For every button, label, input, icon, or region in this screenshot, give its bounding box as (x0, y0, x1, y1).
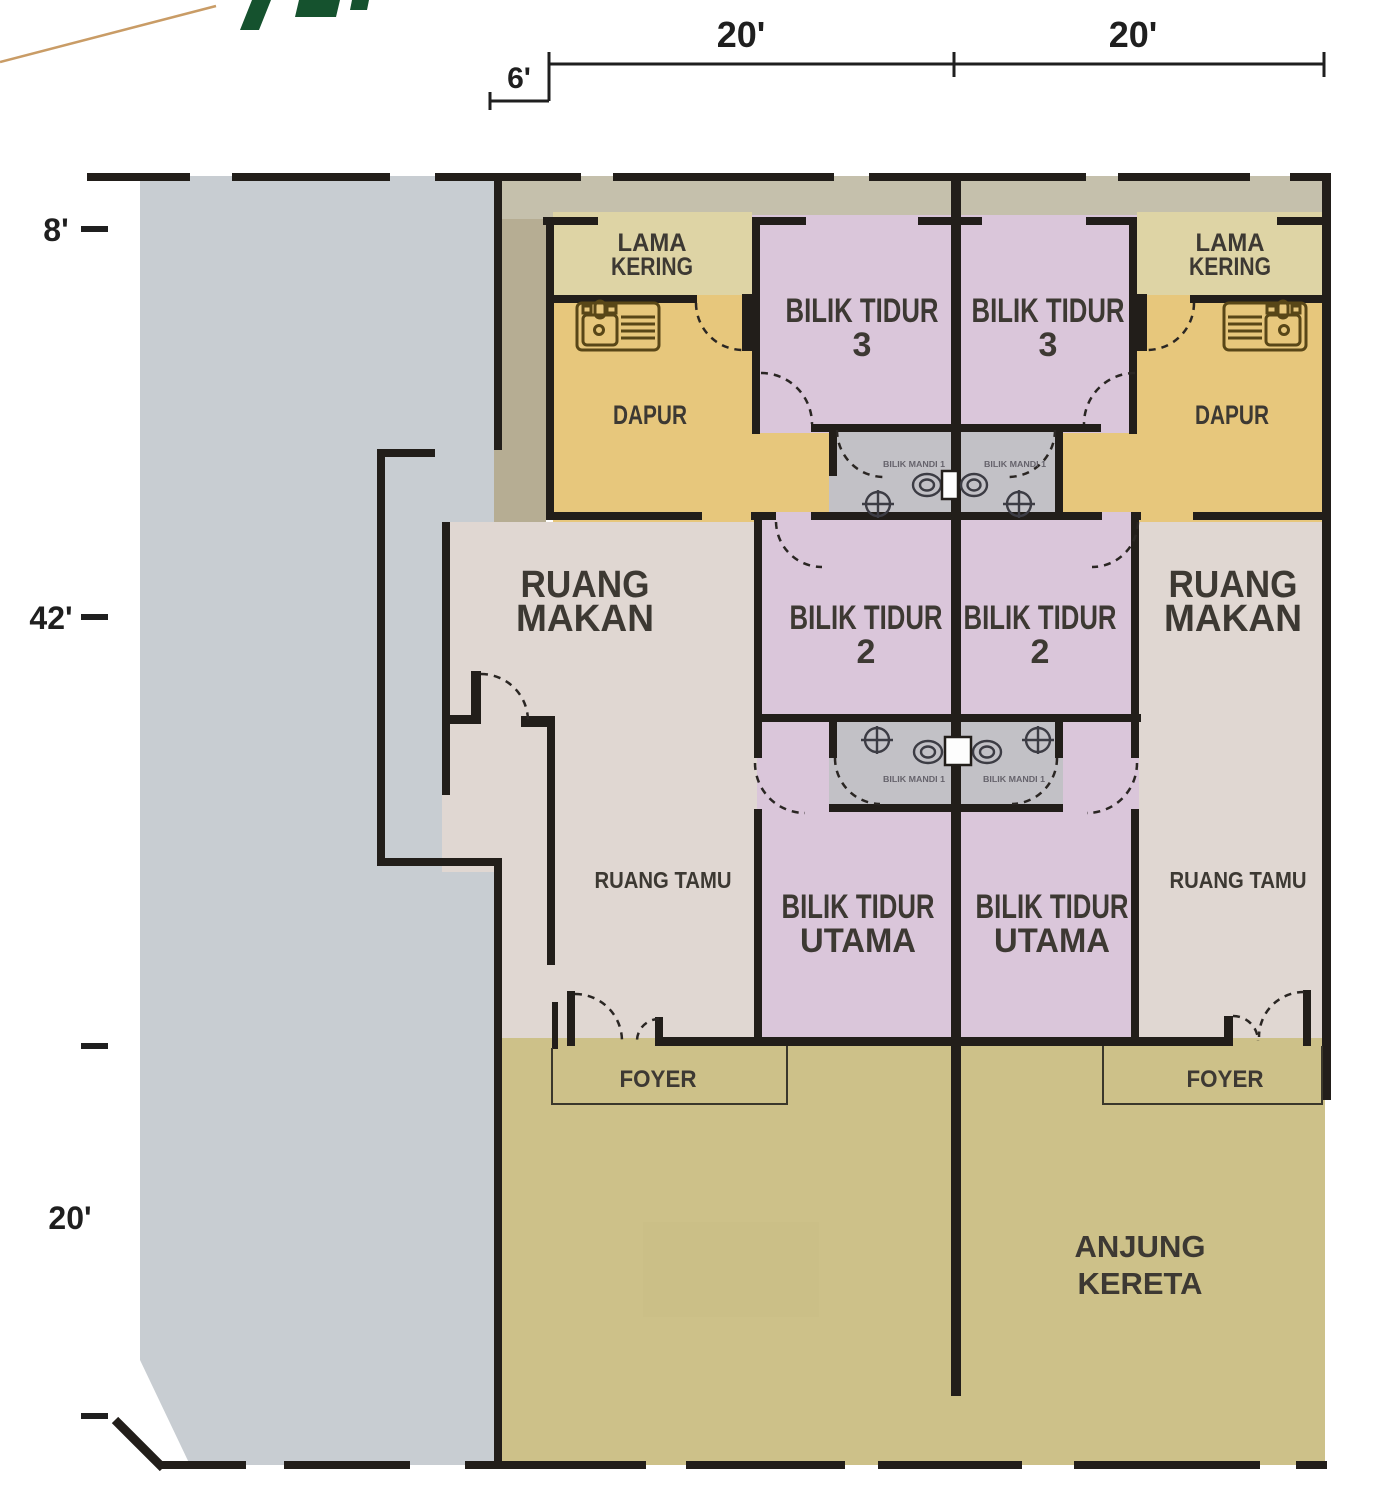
svg-text:MAKAN: MAKAN (516, 598, 654, 640)
svg-text:BILIK MANDI 1: BILIK MANDI 1 (883, 774, 945, 784)
svg-text:2: 2 (1031, 633, 1050, 671)
svg-text:RUANG TAMU: RUANG TAMU (595, 867, 732, 893)
svg-text:BILIK MANDI 1: BILIK MANDI 1 (883, 459, 945, 469)
svg-text:BILIK MANDI 1: BILIK MANDI 1 (983, 774, 1045, 784)
svg-text:KERING: KERING (611, 253, 693, 281)
svg-text:ANJUNG: ANJUNG (1075, 1229, 1206, 1264)
svg-text:RUANG TAMU: RUANG TAMU (1170, 867, 1307, 893)
svg-text:3: 3 (853, 326, 872, 364)
svg-text:BILIK TIDUR: BILIK TIDUR (790, 599, 943, 637)
svg-text:BILIK TIDUR: BILIK TIDUR (972, 292, 1125, 330)
svg-text:KERETA: KERETA (1078, 1266, 1203, 1301)
svg-text:BILIK TIDUR: BILIK TIDUR (782, 888, 935, 926)
svg-text:FOYER: FOYER (1187, 1066, 1264, 1093)
svg-text:KERING: KERING (1189, 253, 1271, 281)
svg-text:BILIK MANDI 1: BILIK MANDI 1 (984, 459, 1046, 469)
svg-text:FOYER: FOYER (620, 1066, 697, 1093)
svg-text:20': 20' (717, 14, 766, 55)
svg-text:2: 2 (857, 633, 876, 671)
svg-text:8': 8' (43, 212, 68, 248)
svg-text:6': 6' (507, 62, 531, 95)
svg-text:BILIK TIDUR: BILIK TIDUR (976, 888, 1129, 926)
svg-text:20': 20' (1109, 14, 1158, 55)
svg-text:BILIK TIDUR: BILIK TIDUR (786, 292, 939, 330)
svg-text:MAKAN: MAKAN (1164, 598, 1302, 640)
svg-text:UTAMA: UTAMA (994, 922, 1110, 960)
svg-text:UTAMA: UTAMA (800, 922, 916, 960)
svg-text:3: 3 (1039, 326, 1058, 364)
svg-text:DAPUR: DAPUR (1195, 400, 1269, 430)
svg-text:BILIK TIDUR: BILIK TIDUR (964, 599, 1117, 637)
svg-text:DAPUR: DAPUR (613, 400, 687, 430)
svg-text:20': 20' (48, 1200, 91, 1236)
svg-text:42': 42' (29, 600, 72, 636)
